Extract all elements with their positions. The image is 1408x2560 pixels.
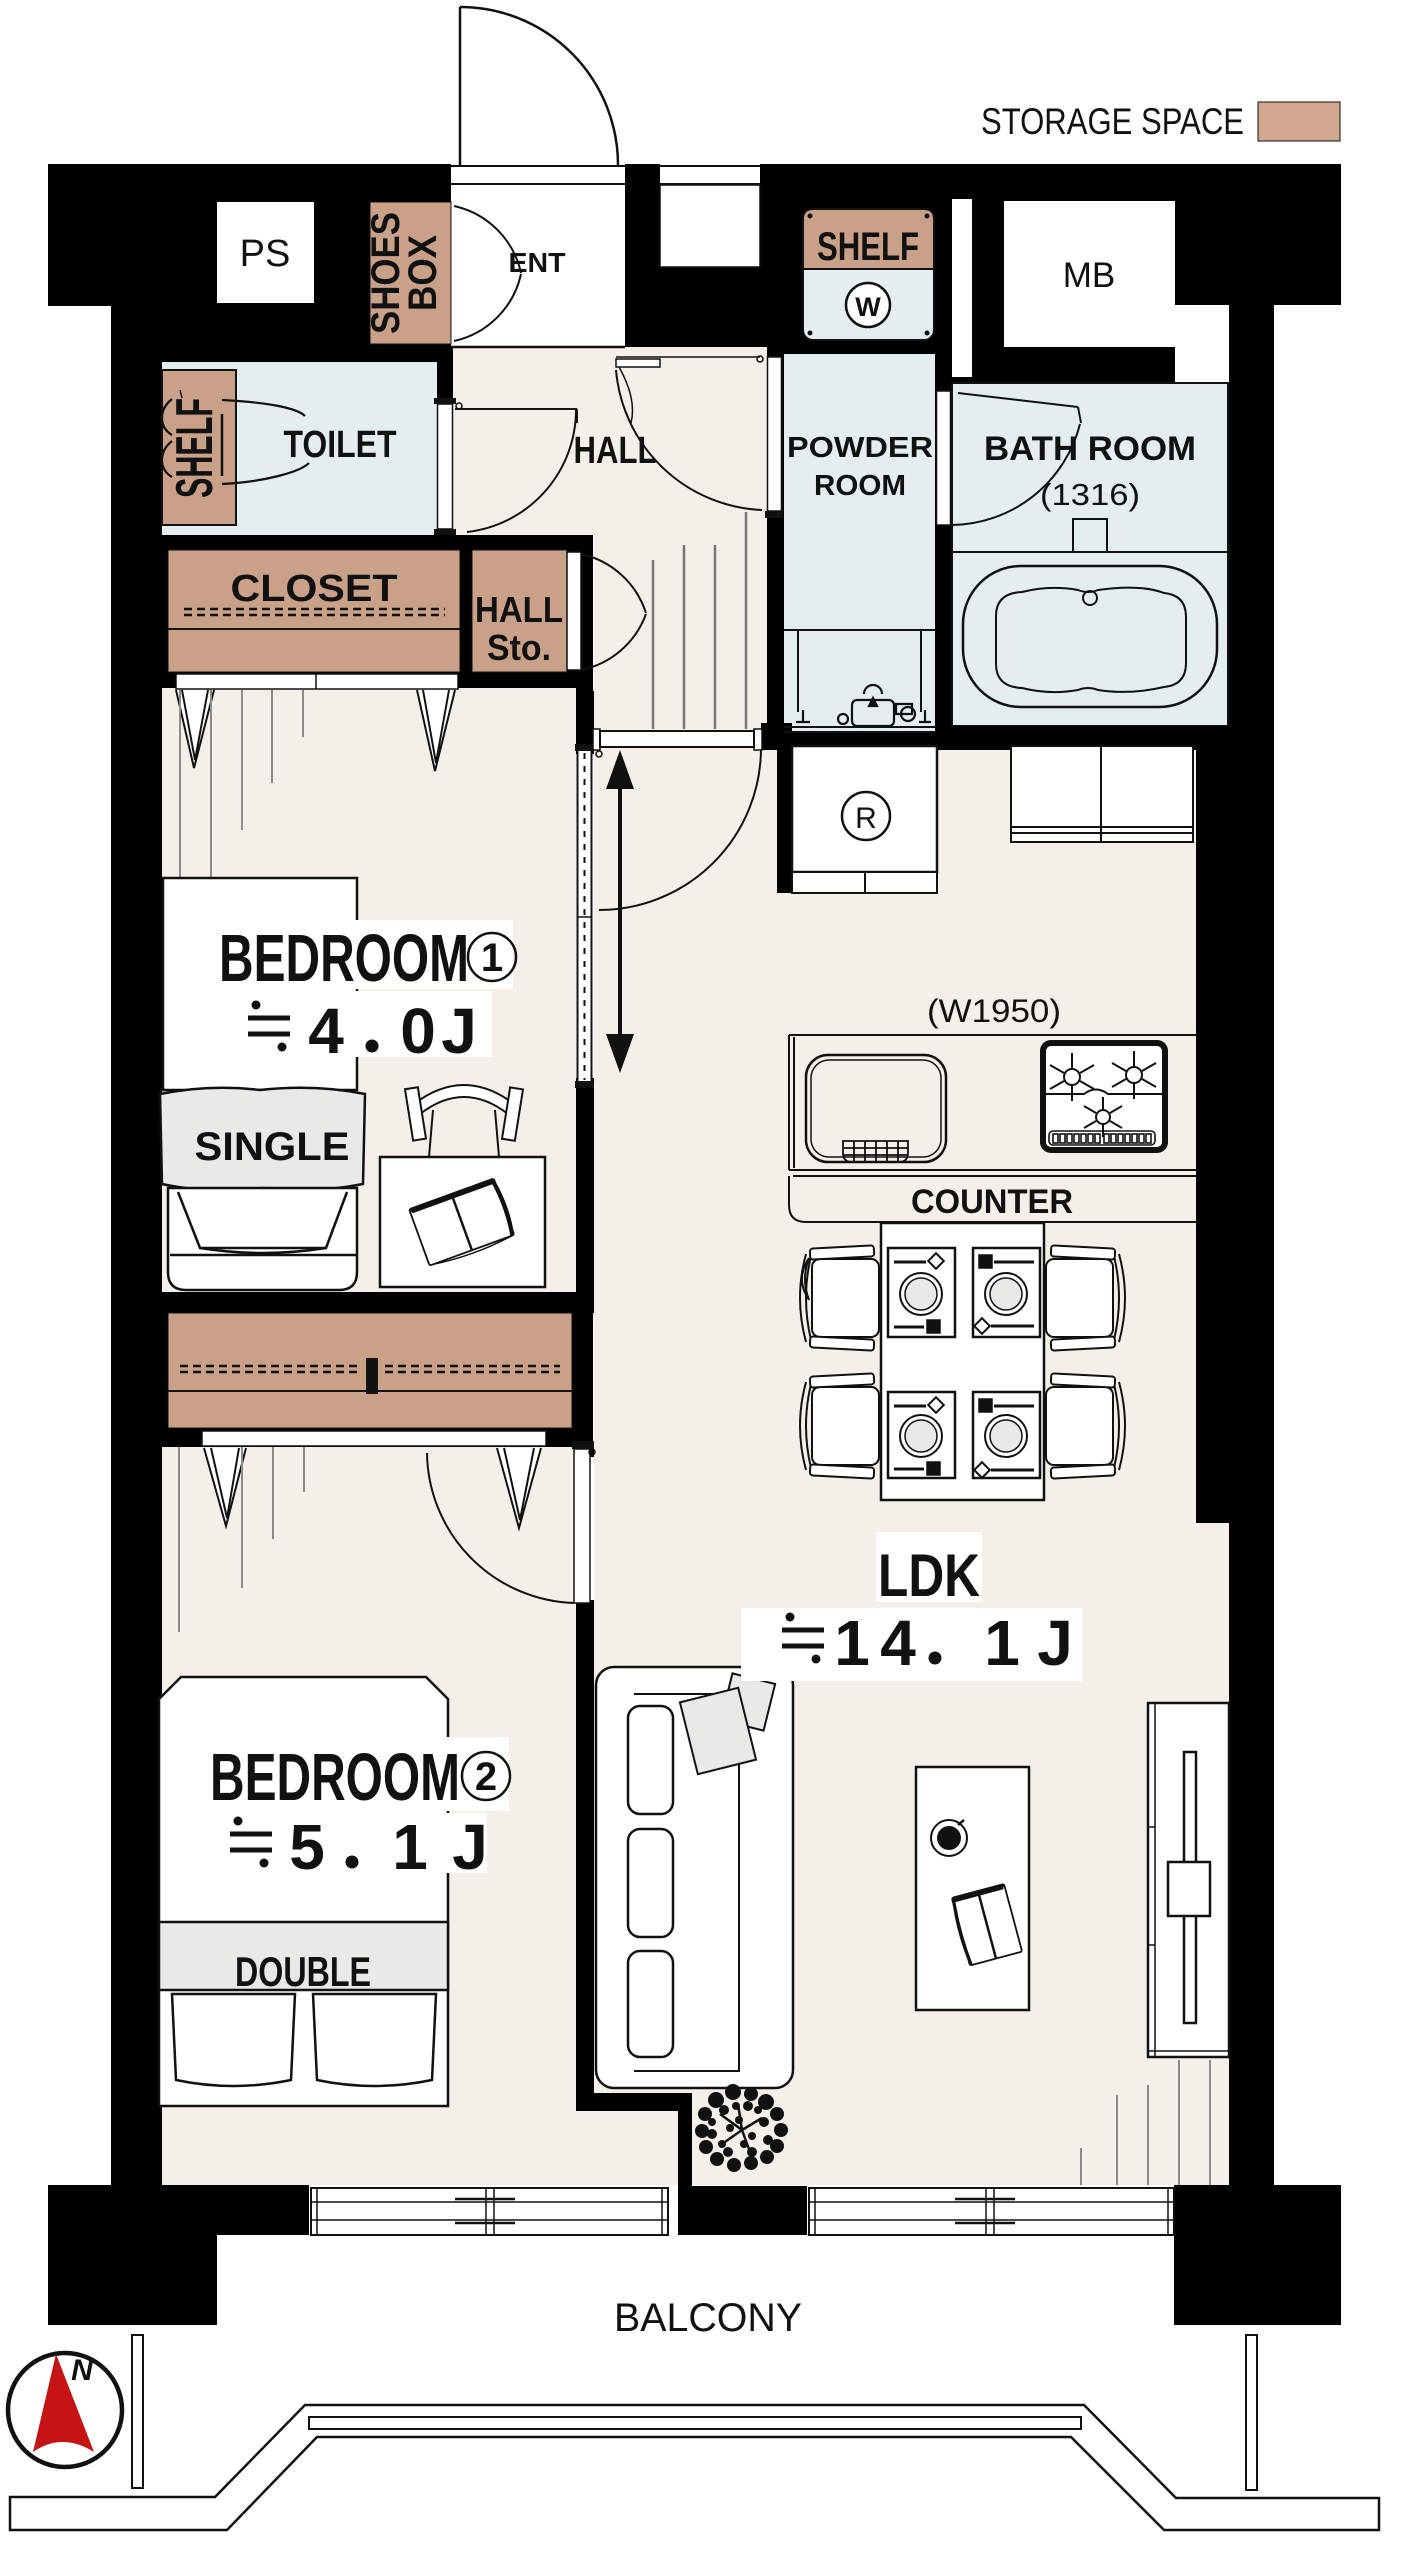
svg-text:5: 5 — [289, 1811, 325, 1883]
svg-text:W: W — [855, 292, 881, 322]
svg-text:1: 1 — [392, 1811, 428, 1883]
svg-text:1: 1 — [481, 936, 503, 980]
svg-text:DOUBLE: DOUBLE — [235, 1948, 371, 1995]
svg-text:SHELF: SHELF — [817, 225, 919, 269]
svg-text:STORAGE SPACE: STORAGE SPACE — [981, 101, 1244, 142]
svg-text:POWDER: POWDER — [787, 432, 933, 464]
svg-text:1: 1 — [834, 1607, 870, 1679]
svg-text:MB: MB — [1063, 256, 1116, 295]
svg-text:Sto.: Sto. — [487, 627, 551, 668]
svg-text:4: 4 — [308, 995, 344, 1067]
svg-text:1: 1 — [984, 1607, 1020, 1679]
svg-text:TOILET: TOILET — [284, 424, 397, 466]
svg-text:J: J — [441, 995, 477, 1067]
svg-text:J: J — [452, 1811, 488, 1883]
svg-text:ROOM: ROOM — [814, 470, 906, 502]
svg-text:4: 4 — [880, 1607, 916, 1679]
svg-text:ENT: ENT — [509, 247, 566, 278]
svg-text:BATH ROOM: BATH ROOM — [984, 430, 1196, 468]
svg-text:0: 0 — [400, 995, 436, 1067]
svg-text:(W1950): (W1950) — [927, 993, 1061, 1029]
svg-text:HALL: HALL — [574, 430, 657, 472]
svg-text:R: R — [855, 802, 877, 835]
svg-text:2: 2 — [475, 1755, 497, 1799]
svg-text:BALCONY: BALCONY — [614, 2296, 802, 2340]
svg-text:(1316): (1316) — [1040, 477, 1140, 512]
svg-text:CLOSET: CLOSET — [231, 568, 398, 610]
svg-text:J: J — [1037, 1607, 1073, 1679]
svg-text:N: N — [71, 2354, 94, 2387]
svg-text:SHELF: SHELF — [166, 398, 224, 498]
svg-text:PS: PS — [240, 233, 291, 275]
svg-text:BOX: BOX — [401, 235, 445, 311]
svg-text:BEDROOM: BEDROOM — [210, 1740, 460, 1815]
svg-text:HALL: HALL — [475, 589, 563, 630]
svg-text:LDK: LDK — [878, 1542, 980, 1609]
svg-text:SINGLE: SINGLE — [195, 1125, 350, 1169]
svg-text:COUNTER: COUNTER — [911, 1183, 1073, 1221]
svg-text:BEDROOM: BEDROOM — [219, 921, 469, 996]
